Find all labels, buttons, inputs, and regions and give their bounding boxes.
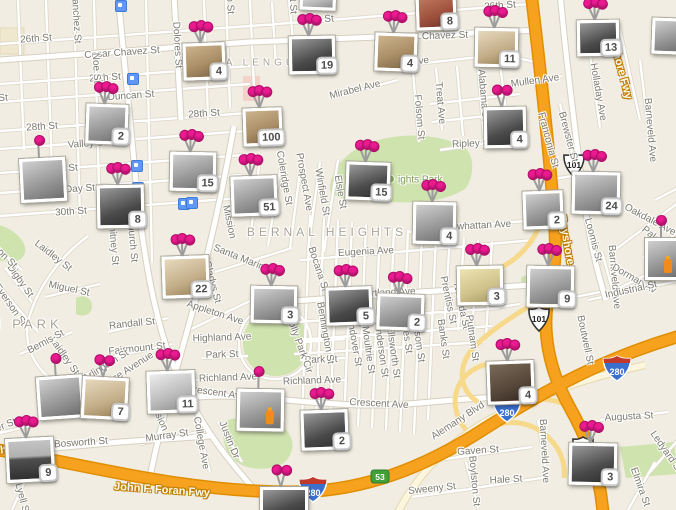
pin-cluster: [394, 17, 395, 33]
photo-marker[interactable]: 100: [242, 107, 276, 140]
photo-marker[interactable]: 4: [413, 202, 451, 239]
photo-marker[interactable]: 22: [161, 255, 203, 292]
photo-marker[interactable]: [651, 18, 676, 49]
marker-count-badge: 11: [499, 50, 521, 68]
photo-marker[interactable]: [19, 157, 61, 197]
marker-count-badge: 51: [258, 198, 281, 217]
pin-cluster: [200, 27, 201, 43]
marker-count-badge: 9: [558, 290, 577, 308]
photo-thumbnail: [36, 374, 85, 420]
pin-cluster: [345, 271, 346, 287]
photo-marker[interactable]: 4: [486, 360, 528, 398]
transit-stop-icon: [186, 197, 198, 209]
pin-cluster: [506, 345, 507, 361]
marker-count-badge: 3: [601, 468, 620, 486]
marker-count-badge: 3: [487, 287, 506, 305]
transit-stop-icon: [131, 160, 143, 172]
photo-marker[interactable]: 9: [5, 437, 49, 477]
svg-text:280: 280: [609, 367, 624, 377]
photo-marker[interactable]: [260, 487, 302, 510]
photo-thumbnail: [260, 487, 308, 510]
photo-marker[interactable]: [237, 389, 279, 426]
pin-icon: [257, 373, 259, 389]
map-canvas[interactable]: 26th St26th St26th StCesar Chavez StChav…: [0, 0, 676, 510]
photo-marker[interactable]: 24: [572, 172, 615, 209]
marker-count-badge: 15: [196, 174, 219, 192]
photo-marker[interactable]: 11: [475, 28, 513, 62]
marker-count-badge: 2: [547, 211, 567, 230]
photo-marker[interactable]: 15: [170, 152, 211, 186]
photo-marker[interactable]: 2: [85, 103, 122, 138]
photo-marker[interactable]: 4: [374, 32, 411, 65]
svg-text:53: 53: [375, 472, 385, 482]
route-shield-280: 280: [602, 355, 632, 387]
photo-thumbnail: [19, 157, 67, 203]
marker-count-badge: 4: [440, 227, 459, 245]
route-shield-101: 101: [526, 306, 552, 337]
marker-count-badge: 5: [356, 307, 376, 326]
pin-cluster: [250, 160, 251, 176]
svg-text:280: 280: [499, 408, 514, 418]
marker-count-badge: 9: [38, 463, 58, 482]
photo-marker[interactable]: 15: [345, 161, 384, 194]
marker-count-badge: 13: [600, 39, 623, 57]
marker-count-badge: 3: [281, 306, 300, 324]
photo-marker[interactable]: [36, 375, 78, 415]
pin-cluster: [55, 360, 56, 376]
transit-stop-icon: [115, 0, 127, 12]
marker-count-badge: 100: [257, 128, 286, 147]
svg-text:101: 101: [532, 314, 546, 324]
photo-marker[interactable]: 19: [289, 36, 330, 69]
photo-marker[interactable]: 2: [376, 293, 418, 324]
photo-marker[interactable]: 8: [415, 0, 450, 25]
pin-cluster: [105, 88, 106, 104]
photo-marker[interactable]: 9: [527, 266, 569, 302]
route-shield-53: 53: [370, 469, 390, 489]
photo-marker[interactable]: [300, 0, 331, 5]
photo-marker[interactable]: [645, 238, 676, 274]
pin-cluster: [366, 146, 367, 162]
marker-count-badge: 19: [316, 56, 339, 74]
photo-marker[interactable]: 3: [457, 266, 498, 300]
pin-cluster: [103, 361, 104, 377]
photo-marker[interactable]: 2: [300, 409, 342, 444]
marker-count-badge: 4: [518, 386, 538, 405]
marker-count-badge: 15: [370, 183, 393, 202]
photo-marker[interactable]: 7: [81, 376, 123, 414]
photo-marker[interactable]: 5: [325, 286, 366, 319]
marker-count-badge: 4: [400, 54, 420, 73]
photo-marker[interactable]: 4: [182, 42, 219, 74]
photo-marker[interactable]: 51: [230, 175, 271, 210]
pin-cluster: [398, 278, 399, 294]
photo-marker[interactable]: 3: [569, 443, 612, 480]
transit-stop-icon: [127, 73, 139, 85]
pin-cluster: [258, 92, 259, 108]
pin-cluster: [25, 422, 26, 438]
svg-text:101: 101: [567, 160, 581, 170]
pin-icon: [660, 222, 662, 238]
marker-count-badge: 24: [600, 197, 623, 215]
pin-cluster: [539, 175, 540, 191]
marker-count-badge: 11: [177, 395, 199, 414]
photo-marker[interactable]: 4: [484, 107, 521, 143]
marker-count-badge: 4: [209, 62, 229, 81]
pin-cluster: [167, 355, 168, 371]
pin-cluster: [181, 240, 182, 256]
pin-cluster: [38, 142, 39, 158]
photo-thumbnail: [651, 18, 676, 55]
photo-thumbnail: [237, 389, 285, 432]
marker-count-badge: 2: [332, 432, 352, 451]
photo-marker[interactable]: 8: [97, 185, 139, 223]
marker-count-badge: 8: [128, 210, 147, 228]
marker-count-badge: 8: [440, 12, 460, 31]
photo-thumbnail: [645, 238, 676, 280]
marker-count-badge: 2: [407, 313, 427, 332]
pin-icon: [37, 142, 40, 158]
photo-marker[interactable]: 11: [146, 370, 189, 407]
marker-count-badge: 2: [111, 127, 131, 146]
photo-marker[interactable]: 2: [522, 190, 557, 223]
photo-thumbnail: [300, 0, 337, 11]
photo-marker[interactable]: 13: [577, 20, 614, 51]
marker-count-badge: 4: [510, 131, 529, 149]
pin-cluster: [320, 394, 321, 410]
marker-count-badge: 22: [190, 280, 213, 299]
marker-count-badge: 7: [111, 403, 131, 422]
photo-marker[interactable]: 3: [251, 286, 292, 318]
